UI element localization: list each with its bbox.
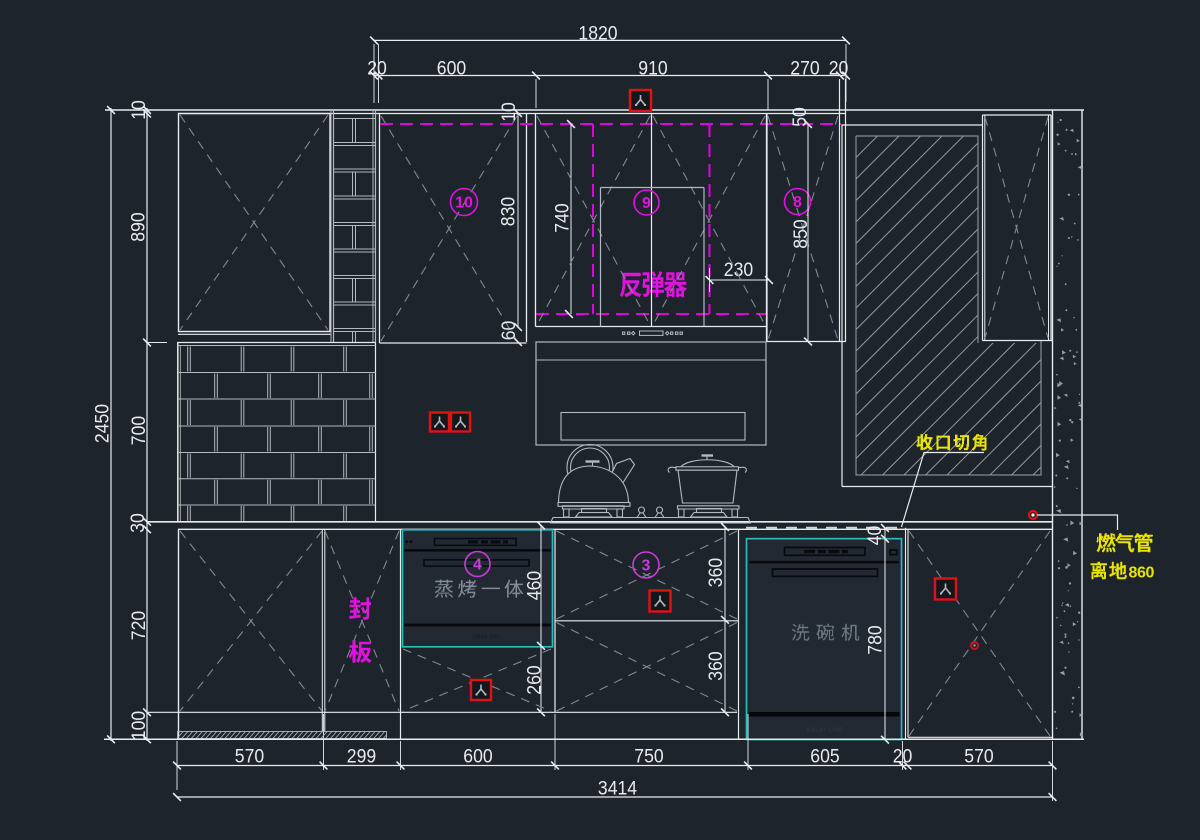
svg-text:260: 260 [524, 665, 546, 695]
svg-text:570: 570 [235, 746, 265, 768]
svg-text:100: 100 [128, 711, 150, 741]
svg-text:BALAY LINE: BALAY LINE [807, 728, 843, 734]
svg-text:1820: 1820 [578, 23, 617, 45]
svg-text:GRAS URC: GRAS URC [473, 635, 502, 641]
svg-text:20: 20 [367, 57, 387, 79]
svg-text:299: 299 [347, 746, 376, 768]
svg-text:2450: 2450 [92, 404, 114, 443]
svg-text:10: 10 [455, 195, 473, 212]
svg-text:605: 605 [810, 746, 840, 768]
svg-text:780: 780 [865, 625, 887, 655]
svg-text:9: 9 [642, 195, 651, 212]
svg-text:600: 600 [437, 57, 467, 79]
svg-text:750: 750 [634, 746, 664, 768]
svg-text:570: 570 [964, 746, 994, 768]
svg-text:20: 20 [829, 57, 849, 79]
svg-text:30: 30 [127, 513, 149, 533]
svg-text:850: 850 [790, 219, 812, 249]
svg-text:740: 740 [552, 203, 574, 233]
svg-text:360: 360 [705, 558, 727, 588]
svg-text:830: 830 [498, 197, 520, 227]
svg-text:20: 20 [893, 746, 913, 768]
svg-text:230: 230 [724, 259, 754, 281]
svg-text:3: 3 [642, 558, 651, 575]
svg-text:720: 720 [128, 611, 150, 641]
svg-text:700: 700 [128, 416, 150, 446]
svg-text:910: 910 [638, 57, 668, 79]
svg-text:890: 890 [128, 212, 150, 242]
svg-text:860: 860 [1129, 565, 1155, 582]
svg-text:50: 50 [789, 107, 811, 127]
svg-text:600: 600 [463, 746, 493, 768]
svg-text:40: 40 [864, 526, 886, 546]
svg-text:8: 8 [793, 194, 802, 211]
svg-text:10: 10 [498, 102, 520, 122]
svg-text:360: 360 [705, 651, 727, 681]
svg-text:460: 460 [524, 571, 546, 601]
svg-text:4: 4 [473, 557, 482, 574]
svg-text:60: 60 [498, 321, 520, 341]
svg-text:3414: 3414 [598, 778, 637, 800]
svg-text:270: 270 [790, 57, 820, 79]
